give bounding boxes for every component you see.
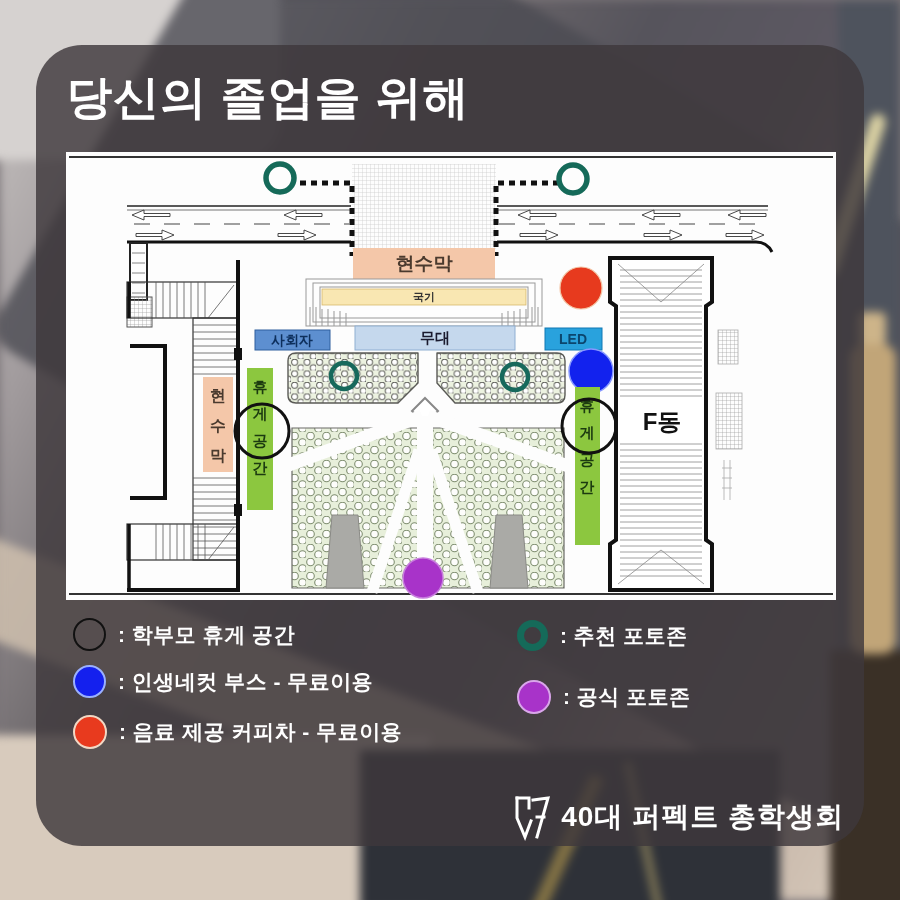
coffee-truck-marker <box>560 267 602 309</box>
crosswalk-grid <box>352 164 496 256</box>
official-photozone-marker <box>403 558 443 598</box>
courtyard-outline <box>130 346 165 498</box>
footer: 40대 퍼펙트 총학생회 <box>512 793 844 841</box>
black-ring-icon <box>73 618 106 651</box>
banner-top-label: 현수막 <box>396 253 454 274</box>
organization-name: 40대 퍼펙트 총학생회 <box>561 798 844 836</box>
plaza-structure-left <box>326 515 364 588</box>
recommended-photozone-ring-top-left <box>266 164 294 192</box>
page-title: 당신의 졸업을 위해 <box>66 67 470 129</box>
legend-label: : 공식 포토존 <box>563 683 691 711</box>
event-map: 현수막 국기 사회자 무대 LED <box>66 152 836 600</box>
legend-item-official-photozone: : 공식 포토존 <box>517 680 691 714</box>
photo-booth-marker <box>569 349 613 393</box>
legend-label: : 음료 제공 커피차 - 무료이용 <box>119 718 402 746</box>
flag-label: 국기 <box>413 291 435 303</box>
blue-dot-icon <box>73 665 106 698</box>
legend-label: : 학부모 휴게 공간 <box>118 621 295 649</box>
teal-ring-icon <box>517 620 548 651</box>
banner-left-label: 현수막 <box>210 387 226 464</box>
recommended-photozone-ring-top-right <box>559 165 587 193</box>
legend-label: : 인생네컷 부스 - 무료이용 <box>118 668 373 696</box>
building-f: F동 <box>610 258 742 590</box>
red-dot-icon <box>73 715 107 749</box>
stage-label: 무대 <box>420 329 450 346</box>
legend-item-recommended-photozone: : 추천 포토존 <box>517 620 688 651</box>
building-f-label: F동 <box>643 408 682 435</box>
mc-label: 사회자 <box>271 332 313 348</box>
legend-item-parents-rest: : 학부모 휴게 공간 <box>73 618 295 651</box>
led-label: LED <box>559 331 587 347</box>
purple-dot-icon <box>517 680 551 714</box>
barrier-dashed-right <box>496 183 559 256</box>
legend-item-photo-booth: : 인생네컷 부스 - 무료이용 <box>73 665 373 698</box>
building-left: 현수막 <box>127 243 242 590</box>
legend-label: : 추천 포토존 <box>560 622 688 650</box>
legend-item-coffee-truck: : 음료 제공 커피차 - 무료이용 <box>73 715 402 749</box>
event-map-panel: 현수막 국기 사회자 무대 LED <box>66 152 836 600</box>
barrier-dashed-left <box>300 183 352 256</box>
poster-card: 당신의 졸업을 위해 <box>36 45 864 846</box>
plaza-structure-right <box>490 515 528 588</box>
student-council-logo-icon <box>512 793 552 841</box>
